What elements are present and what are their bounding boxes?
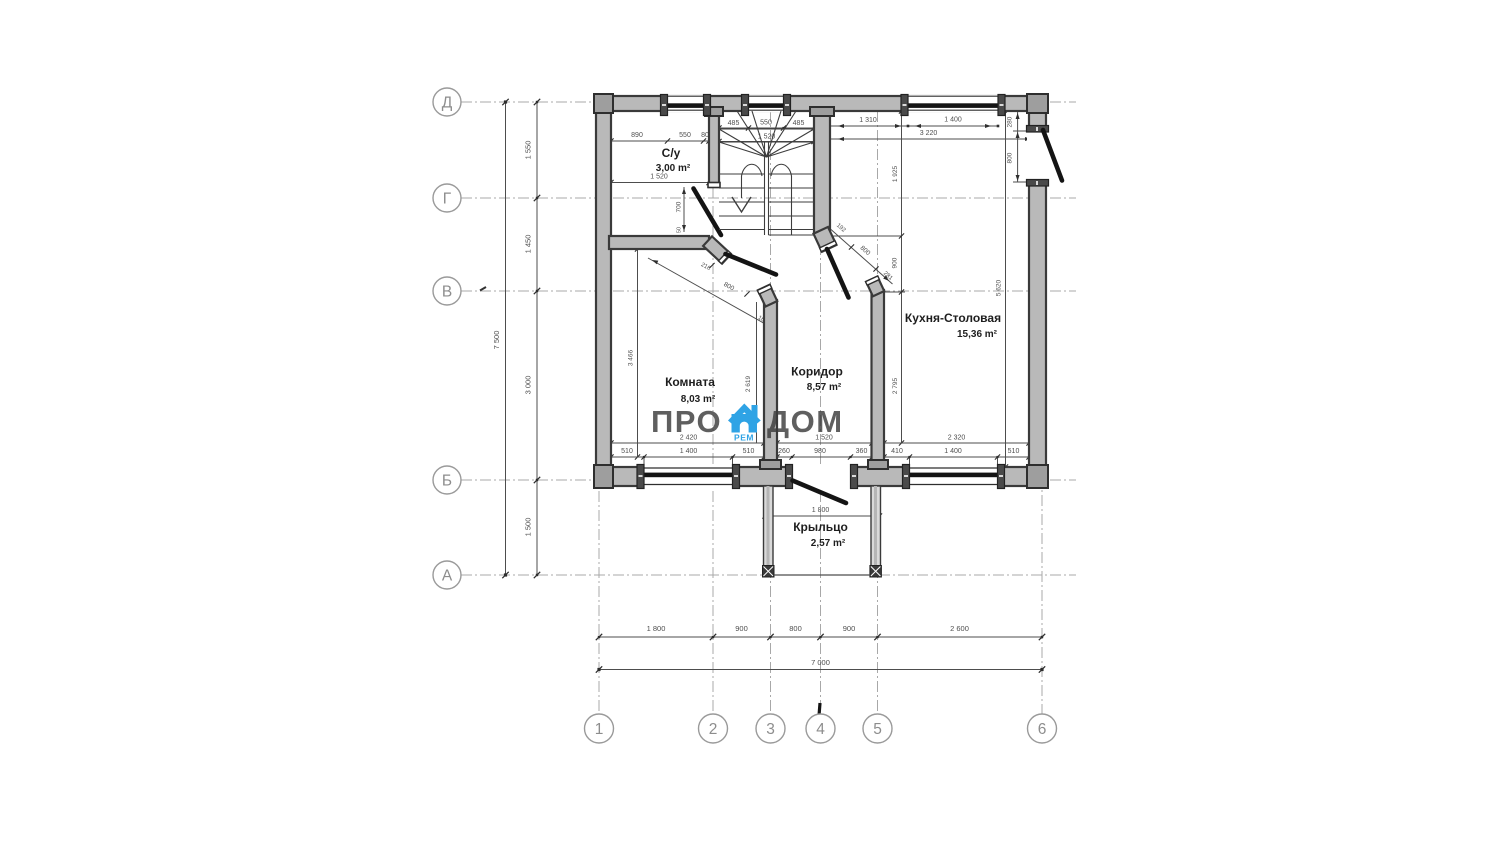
svg-text:510: 510 — [743, 448, 755, 455]
svg-text:3 220: 3 220 — [920, 130, 938, 137]
svg-text:8,57 m²: 8,57 m² — [807, 382, 842, 393]
svg-text:1 400: 1 400 — [680, 448, 698, 455]
svg-text:1 520: 1 520 — [650, 174, 668, 181]
svg-text:980: 980 — [814, 448, 826, 455]
svg-text:РЕМ: РЕМ — [734, 433, 754, 443]
svg-text:Кухня-Столовая: Кухня-Столовая — [905, 311, 1001, 325]
svg-text:Д: Д — [442, 95, 453, 112]
svg-text:485: 485 — [793, 120, 805, 127]
svg-text:ДОМ: ДОМ — [767, 404, 844, 439]
svg-text:80: 80 — [701, 132, 709, 139]
svg-text:7 500: 7 500 — [492, 331, 501, 350]
svg-text:1 500: 1 500 — [524, 518, 533, 537]
svg-text:360: 360 — [856, 448, 868, 455]
svg-text:1 800: 1 800 — [647, 624, 666, 633]
svg-text:3 466: 3 466 — [628, 349, 635, 366]
svg-text:2 600: 2 600 — [950, 624, 969, 633]
svg-text:15,36 m²: 15,36 m² — [957, 329, 998, 340]
svg-text:1 550: 1 550 — [524, 141, 533, 160]
svg-text:3 000: 3 000 — [524, 376, 533, 395]
svg-text:2,57 m²: 2,57 m² — [811, 538, 846, 549]
svg-text:260: 260 — [778, 448, 790, 455]
svg-text:510: 510 — [1008, 448, 1020, 455]
svg-text:ПРО: ПРО — [651, 404, 722, 439]
svg-text:А: А — [442, 568, 453, 585]
svg-text:2: 2 — [709, 721, 718, 738]
svg-text:6: 6 — [1038, 721, 1047, 738]
svg-text:С/у: С/у — [662, 146, 681, 160]
svg-text:1 450: 1 450 — [524, 235, 533, 254]
svg-text:В: В — [442, 284, 452, 301]
svg-text:510: 510 — [621, 448, 633, 455]
svg-text:890: 890 — [631, 132, 643, 139]
svg-text:900: 900 — [892, 257, 899, 268]
svg-text:2 619: 2 619 — [745, 375, 752, 392]
svg-text:550: 550 — [679, 132, 691, 139]
svg-text:280: 280 — [1007, 116, 1014, 127]
svg-text:900: 900 — [735, 624, 748, 633]
svg-text:5 620: 5 620 — [996, 279, 1003, 296]
svg-text:1 925: 1 925 — [892, 165, 899, 182]
svg-text:Комната: Комната — [665, 375, 715, 389]
svg-text:3,00 m²: 3,00 m² — [656, 163, 691, 174]
svg-text:5: 5 — [873, 721, 882, 738]
svg-text:2 320: 2 320 — [948, 435, 966, 442]
svg-text:900: 900 — [843, 624, 856, 633]
svg-text:410: 410 — [891, 448, 903, 455]
svg-text:7 000: 7 000 — [811, 658, 830, 667]
svg-text:3: 3 — [766, 721, 775, 738]
svg-text:50: 50 — [677, 227, 683, 233]
svg-text:800: 800 — [1007, 152, 1014, 163]
svg-text:700: 700 — [676, 201, 683, 212]
svg-text:1: 1 — [595, 721, 604, 738]
svg-text:1 400: 1 400 — [944, 448, 962, 455]
svg-text:485: 485 — [728, 120, 740, 127]
svg-text:Крыльцо: Крыльцо — [793, 520, 848, 534]
svg-text:Коридор: Коридор — [791, 365, 843, 379]
svg-text:1 310: 1 310 — [859, 117, 877, 124]
svg-text:4: 4 — [816, 721, 825, 738]
svg-text:Г: Г — [443, 191, 452, 208]
svg-text:Б: Б — [442, 473, 452, 490]
svg-text:2 795: 2 795 — [892, 377, 899, 394]
svg-text:800: 800 — [789, 624, 802, 633]
svg-text:550: 550 — [760, 120, 772, 127]
svg-text:1 800: 1 800 — [812, 507, 830, 514]
svg-text:1 400: 1 400 — [944, 117, 962, 124]
